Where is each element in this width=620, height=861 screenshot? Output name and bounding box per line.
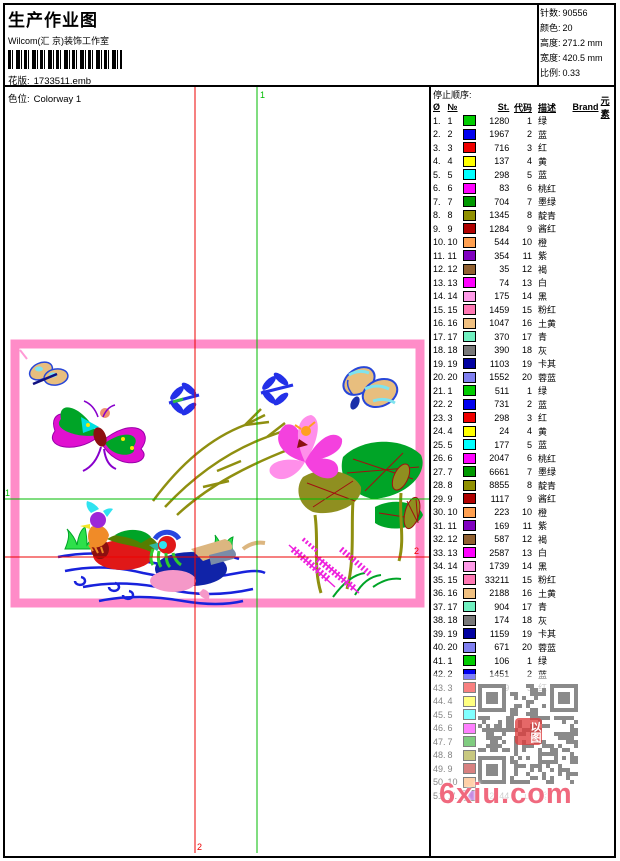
col-brand: Brand <box>573 102 601 112</box>
color-chip <box>463 426 478 437</box>
color-swatch <box>463 372 476 383</box>
color-no: 8 <box>448 480 463 490</box>
stitch-count: 731 <box>478 399 510 409</box>
table-row: 10.1054410橙 <box>431 236 617 250</box>
row-number: 32. <box>433 534 448 544</box>
color-no: 16 <box>448 588 463 598</box>
table-row: 36.16218816土黄 <box>431 587 617 601</box>
design-width: 宽度:420.5 mm <box>540 51 616 66</box>
stitch-count: 74 <box>478 278 510 288</box>
color-code: 7 <box>509 467 532 477</box>
color-chip <box>463 372 478 383</box>
table-row: 25.51775蓝 <box>431 438 617 452</box>
stitch-count: 1117 <box>478 494 510 504</box>
barcode <box>8 50 122 69</box>
color-description: 酱红 <box>532 492 573 505</box>
color-swatch <box>463 561 476 572</box>
color-no: 11 <box>448 521 463 531</box>
row-number: 7. <box>433 197 448 207</box>
table-row: 9.912849酱红 <box>431 222 617 236</box>
color-chip <box>463 561 478 572</box>
table-row: 19.19110319卡其 <box>431 357 617 371</box>
color-code: 18 <box>509 615 532 625</box>
color-chip <box>463 480 478 491</box>
stitch-count: 针数:90556 <box>540 6 616 21</box>
color-code: 6 <box>509 183 532 193</box>
stitch-count: 1284 <box>478 224 510 234</box>
design-canvas: 1 2 1 2 <box>3 87 429 853</box>
color-no: 5 <box>448 440 463 450</box>
color-description: 青 <box>532 600 573 613</box>
color-no: 14 <box>448 291 463 301</box>
row-number: 4. <box>433 156 448 166</box>
table-row: 20.20155220蓉蓝 <box>431 371 617 385</box>
row-number: 5. <box>433 170 448 180</box>
table-row: 18.1839018灰 <box>431 344 617 358</box>
color-chip <box>463 169 478 180</box>
row-number: 23. <box>433 413 448 423</box>
color-chip <box>463 588 478 599</box>
stitch-count: 35 <box>478 264 510 274</box>
color-description: 褐 <box>532 533 573 546</box>
color-code: 8 <box>509 210 532 220</box>
table-row: 29.911179酱红 <box>431 492 617 506</box>
color-swatch <box>463 574 476 585</box>
color-description: 墨绿 <box>532 465 573 478</box>
color-code: 9 <box>509 224 532 234</box>
color-swatch <box>463 493 476 504</box>
color-description: 卡其 <box>532 627 573 640</box>
table-row: 5.52985蓝 <box>431 168 617 182</box>
stitch-count: 24 <box>478 426 510 436</box>
color-no: 12 <box>448 264 463 274</box>
color-swatch <box>463 453 476 464</box>
table-row: 6.6836桃红 <box>431 182 617 196</box>
color-code: 3 <box>509 143 532 153</box>
stitch-count: 33211 <box>478 575 510 585</box>
stitch-count: 354 <box>478 251 510 261</box>
color-code: 20 <box>509 642 532 652</box>
color-no: 2 <box>448 399 463 409</box>
color-code: 16 <box>509 318 532 328</box>
color-no: 12 <box>448 534 463 544</box>
row-number: 37. <box>433 602 448 612</box>
color-no: 4 <box>448 426 463 436</box>
production-worksheet: 生产作业图 Wilcom(汇 京)装饰工作室 花版:1733511.emb 色位… <box>0 0 620 861</box>
color-description: 白 <box>532 276 573 289</box>
row-number: 8. <box>433 210 448 220</box>
color-no: 1 <box>448 656 463 666</box>
row-number: 21. <box>433 386 448 396</box>
stitch-count: 1459 <box>478 305 510 315</box>
color-swatch <box>463 439 476 450</box>
color-no: 13 <box>448 548 463 558</box>
color-description: 青 <box>532 330 573 343</box>
color-description: 灰 <box>532 614 573 627</box>
color-no: 19 <box>448 359 463 369</box>
stitch-count: 704 <box>478 197 510 207</box>
stitch-count: 2188 <box>478 588 510 598</box>
color-swatch <box>463 520 476 531</box>
row-number: 6. <box>433 183 448 193</box>
color-no: 16 <box>448 318 463 328</box>
table-row: 1.112801绿 <box>431 114 617 128</box>
stitch-count: 8855 <box>478 480 510 490</box>
color-chip <box>463 493 478 504</box>
stitch-count: 137 <box>478 156 510 166</box>
row-number: 41. <box>433 656 448 666</box>
color-description: 紫 <box>532 519 573 532</box>
table-row: 26.620476桃红 <box>431 452 617 466</box>
stitch-count: 390 <box>478 345 510 355</box>
color-swatch <box>463 237 476 248</box>
col-stitches: St. <box>478 102 510 112</box>
stitch-count: 6661 <box>478 467 510 477</box>
row-number: 40. <box>433 642 448 652</box>
color-description: 蓝 <box>532 398 573 411</box>
lotus-flower <box>270 415 343 479</box>
color-swatch <box>463 196 476 207</box>
table-divider <box>429 85 431 856</box>
table-row: 28.888558靛青 <box>431 479 617 493</box>
color-swatch <box>463 183 476 194</box>
color-code: 9 <box>509 494 532 504</box>
color-code: 1 <box>509 116 532 126</box>
color-swatch <box>463 291 476 302</box>
table-row: 40.2067120蓉蓝 <box>431 641 617 655</box>
color-no: 7 <box>448 197 463 207</box>
color-chip <box>463 642 478 653</box>
magenta-plants <box>289 539 371 593</box>
color-no: 17 <box>448 602 463 612</box>
color-no: 1 <box>448 116 463 126</box>
color-chip <box>463 547 478 558</box>
color-swatch <box>463 345 476 356</box>
color-no: 17 <box>448 332 463 342</box>
color-swatch <box>463 331 476 342</box>
color-code: 10 <box>509 237 532 247</box>
color-no: 10 <box>448 507 463 517</box>
stitch-count: 904 <box>478 602 510 612</box>
color-code: 19 <box>509 359 532 369</box>
color-code: 2 <box>509 399 532 409</box>
color-code: 20 <box>509 372 532 382</box>
stitch-count: 1552 <box>478 372 510 382</box>
color-chip <box>463 466 478 477</box>
color-code: 13 <box>509 548 532 558</box>
stitch-count: 671 <box>478 642 510 652</box>
color-description: 黄 <box>532 155 573 168</box>
color-description: 黄 <box>532 425 573 438</box>
color-chip <box>463 439 478 450</box>
design-info-box: 针数:90556 颜色:20 高度:271.2 mm 宽度:420.5 mm 比… <box>540 6 616 81</box>
color-no: 6 <box>448 183 463 193</box>
table-row: 22.27312蓝 <box>431 398 617 412</box>
color-code: 12 <box>509 264 532 274</box>
color-description: 土黄 <box>532 317 573 330</box>
table-row: 4.41374黄 <box>431 155 617 169</box>
color-description: 蓝 <box>532 438 573 451</box>
color-code: 6 <box>509 453 532 463</box>
color-description: 橙 <box>532 506 573 519</box>
table-row: 27.766617墨绿 <box>431 465 617 479</box>
color-chip <box>463 291 478 302</box>
color-description: 蓝 <box>532 168 573 181</box>
color-description: 黑 <box>532 290 573 303</box>
color-chip <box>463 601 478 612</box>
color-chip <box>463 399 478 410</box>
color-chip <box>463 223 478 234</box>
color-swatch <box>463 223 476 234</box>
color-swatch <box>463 534 476 545</box>
red-guide-right-label: 2 <box>414 546 419 556</box>
table-row: 2.219672蓝 <box>431 128 617 142</box>
col-description: 描述 <box>532 101 573 114</box>
color-no: 9 <box>448 224 463 234</box>
color-chip <box>463 304 478 315</box>
stitch-count: 1967 <box>478 129 510 139</box>
mandarin-duck-right <box>150 532 236 599</box>
design-scale: 比例:0.33 <box>540 66 616 81</box>
row-number: 12. <box>433 264 448 274</box>
butterfly-right <box>338 361 402 412</box>
watermark-stamp-icon: 以图 <box>515 718 542 745</box>
table-row: 39.19115919卡其 <box>431 627 617 641</box>
color-code: 17 <box>509 332 532 342</box>
row-number: 19. <box>433 359 448 369</box>
color-count: 颜色:20 <box>540 21 616 36</box>
table-row: 21.15111绿 <box>431 384 617 398</box>
color-description: 红 <box>532 411 573 424</box>
color-no: 3 <box>448 413 463 423</box>
color-description: 黑 <box>532 560 573 573</box>
table-row: 35.153321115粉红 <box>431 573 617 587</box>
stitch-count: 83 <box>478 183 510 193</box>
table-row: 38.1817418灰 <box>431 614 617 628</box>
color-code: 14 <box>509 561 532 571</box>
table-row: 11.1135411紫 <box>431 249 617 263</box>
color-code: 12 <box>509 534 532 544</box>
table-row: 30.1022310橙 <box>431 506 617 520</box>
color-swatch <box>463 507 476 518</box>
color-no: 6 <box>448 453 463 463</box>
stitch-count: 587 <box>478 534 510 544</box>
color-no: 3 <box>448 143 463 153</box>
color-no: 11 <box>448 251 463 261</box>
color-code: 18 <box>509 345 532 355</box>
color-swatch <box>463 277 476 288</box>
color-no: 8 <box>448 210 463 220</box>
color-description: 土黄 <box>532 587 573 600</box>
color-code: 19 <box>509 629 532 639</box>
table-row: 31.1116911紫 <box>431 519 617 533</box>
color-swatch <box>463 115 476 126</box>
butterfly-small-left <box>27 359 69 387</box>
color-chip <box>463 507 478 518</box>
color-swatch <box>463 601 476 612</box>
color-description: 蓝 <box>532 128 573 141</box>
dragonfly-left <box>168 381 199 418</box>
color-chip <box>463 331 478 342</box>
color-description: 靛青 <box>532 209 573 222</box>
col-no: № <box>448 102 463 112</box>
color-code: 16 <box>509 588 532 598</box>
row-number: 34. <box>433 561 448 571</box>
row-number: 20. <box>433 372 448 382</box>
butterfly-large-magenta <box>52 401 145 471</box>
row-number: 30. <box>433 507 448 517</box>
col-code: 代码 <box>509 101 532 114</box>
color-swatch <box>463 412 476 423</box>
row-number: 27. <box>433 467 448 477</box>
color-chip <box>463 534 478 545</box>
color-swatch <box>463 304 476 315</box>
color-swatch <box>463 642 476 653</box>
color-code: 15 <box>509 575 532 585</box>
row-number: 10. <box>433 237 448 247</box>
color-description: 墨绿 <box>532 195 573 208</box>
stop-order-title: 停止顺序: <box>431 86 617 100</box>
color-description: 橙 <box>532 236 573 249</box>
color-description: 粉红 <box>532 303 573 316</box>
table-row: 34.14173914黑 <box>431 560 617 574</box>
color-description: 紫 <box>532 249 573 262</box>
table-row: 37.1790417青 <box>431 600 617 614</box>
color-swatch <box>463 480 476 491</box>
color-code: 3 <box>509 413 532 423</box>
stitch-count: 1103 <box>478 359 510 369</box>
color-chip <box>463 264 478 275</box>
color-chip <box>463 453 478 464</box>
color-description: 蓉蓝 <box>532 641 573 654</box>
color-description: 绿 <box>532 114 573 127</box>
color-swatch <box>463 385 476 396</box>
color-chip <box>463 574 478 585</box>
color-description: 灰 <box>532 344 573 357</box>
row-number: 16. <box>433 318 448 328</box>
header-divider <box>3 85 616 87</box>
studio-name: Wilcom(汇 京)装饰工作室 <box>8 34 528 47</box>
color-chip <box>463 196 478 207</box>
color-code: 7 <box>509 197 532 207</box>
color-description: 红 <box>532 141 573 154</box>
stitch-count: 174 <box>478 615 510 625</box>
table-header: Ø № St. 代码 描述 Brand 元素 <box>431 100 617 114</box>
color-swatch <box>463 358 476 369</box>
color-no: 20 <box>448 642 463 652</box>
color-swatch <box>463 250 476 261</box>
color-chip <box>463 237 478 248</box>
color-no: 4 <box>448 156 463 166</box>
color-description: 蓉蓝 <box>532 371 573 384</box>
row-number: 26. <box>433 453 448 463</box>
color-no: 2 <box>448 129 463 139</box>
table-row: 33.13258713白 <box>431 546 617 560</box>
color-description: 粉红 <box>532 573 573 586</box>
design-height: 高度:271.2 mm <box>540 36 616 51</box>
stitch-count: 544 <box>478 237 510 247</box>
row-number: 17. <box>433 332 448 342</box>
table-row: 14.1417514黑 <box>431 290 617 304</box>
color-no: 5 <box>448 170 463 180</box>
row-number: 28. <box>433 480 448 490</box>
color-swatch <box>463 169 476 180</box>
color-swatch <box>463 156 476 167</box>
row-number: 14. <box>433 291 448 301</box>
table-row: 3.37163红 <box>431 141 617 155</box>
table-row: 41.11061绿 <box>431 654 617 668</box>
color-chip <box>463 412 478 423</box>
color-chip <box>463 183 478 194</box>
green-guide-left-label: 1 <box>5 488 10 498</box>
color-code: 10 <box>509 507 532 517</box>
stitch-count: 2587 <box>478 548 510 558</box>
stitch-count: 1739 <box>478 561 510 571</box>
color-code: 14 <box>509 291 532 301</box>
color-swatch <box>463 615 476 626</box>
row-number: 9. <box>433 224 448 234</box>
color-swatch <box>463 588 476 599</box>
color-code: 17 <box>509 602 532 612</box>
color-swatch <box>463 264 476 275</box>
color-code: 1 <box>509 656 532 666</box>
color-no: 18 <box>448 345 463 355</box>
color-swatch <box>463 426 476 437</box>
stitch-count: 169 <box>478 521 510 531</box>
stitch-count: 716 <box>478 143 510 153</box>
dragonfly-right <box>260 371 293 408</box>
color-description: 酱红 <box>532 222 573 235</box>
row-number: 22. <box>433 399 448 409</box>
table-row: 12.123512褐 <box>431 263 617 277</box>
row-number: 13. <box>433 278 448 288</box>
color-no: 1 <box>448 386 463 396</box>
color-chip <box>463 277 478 288</box>
color-no: 19 <box>448 629 463 639</box>
table-row: 7.77047墨绿 <box>431 195 617 209</box>
color-description: 桃红 <box>532 452 573 465</box>
color-chip <box>463 615 478 626</box>
table-row: 17.1737017青 <box>431 330 617 344</box>
color-chip <box>463 655 478 666</box>
table-row: 13.137413白 <box>431 276 617 290</box>
watermark-text: 6xiu.com <box>439 778 573 811</box>
color-code: 15 <box>509 305 532 315</box>
embroidery-preview: 1 2 1 2 <box>3 87 429 853</box>
stitch-count: 298 <box>478 413 510 423</box>
stitch-count: 223 <box>478 507 510 517</box>
color-chip <box>463 142 478 153</box>
color-no: 15 <box>448 305 463 315</box>
color-code: 4 <box>509 426 532 436</box>
red-guide-bottom-label: 2 <box>197 842 202 852</box>
stitch-count: 2047 <box>478 453 510 463</box>
color-description: 卡其 <box>532 357 573 370</box>
table-row: 32.1258712褐 <box>431 533 617 547</box>
color-description: 绿 <box>532 384 573 397</box>
color-description: 靛青 <box>532 479 573 492</box>
infobox-divider <box>537 3 539 85</box>
color-code: 4 <box>509 156 532 166</box>
color-chip <box>463 358 478 369</box>
color-swatch <box>463 628 476 639</box>
color-chip <box>463 345 478 356</box>
color-code: 1 <box>509 386 532 396</box>
color-no: 9 <box>448 494 463 504</box>
color-swatch <box>463 318 476 329</box>
color-swatch <box>463 547 476 558</box>
color-code: 5 <box>509 440 532 450</box>
